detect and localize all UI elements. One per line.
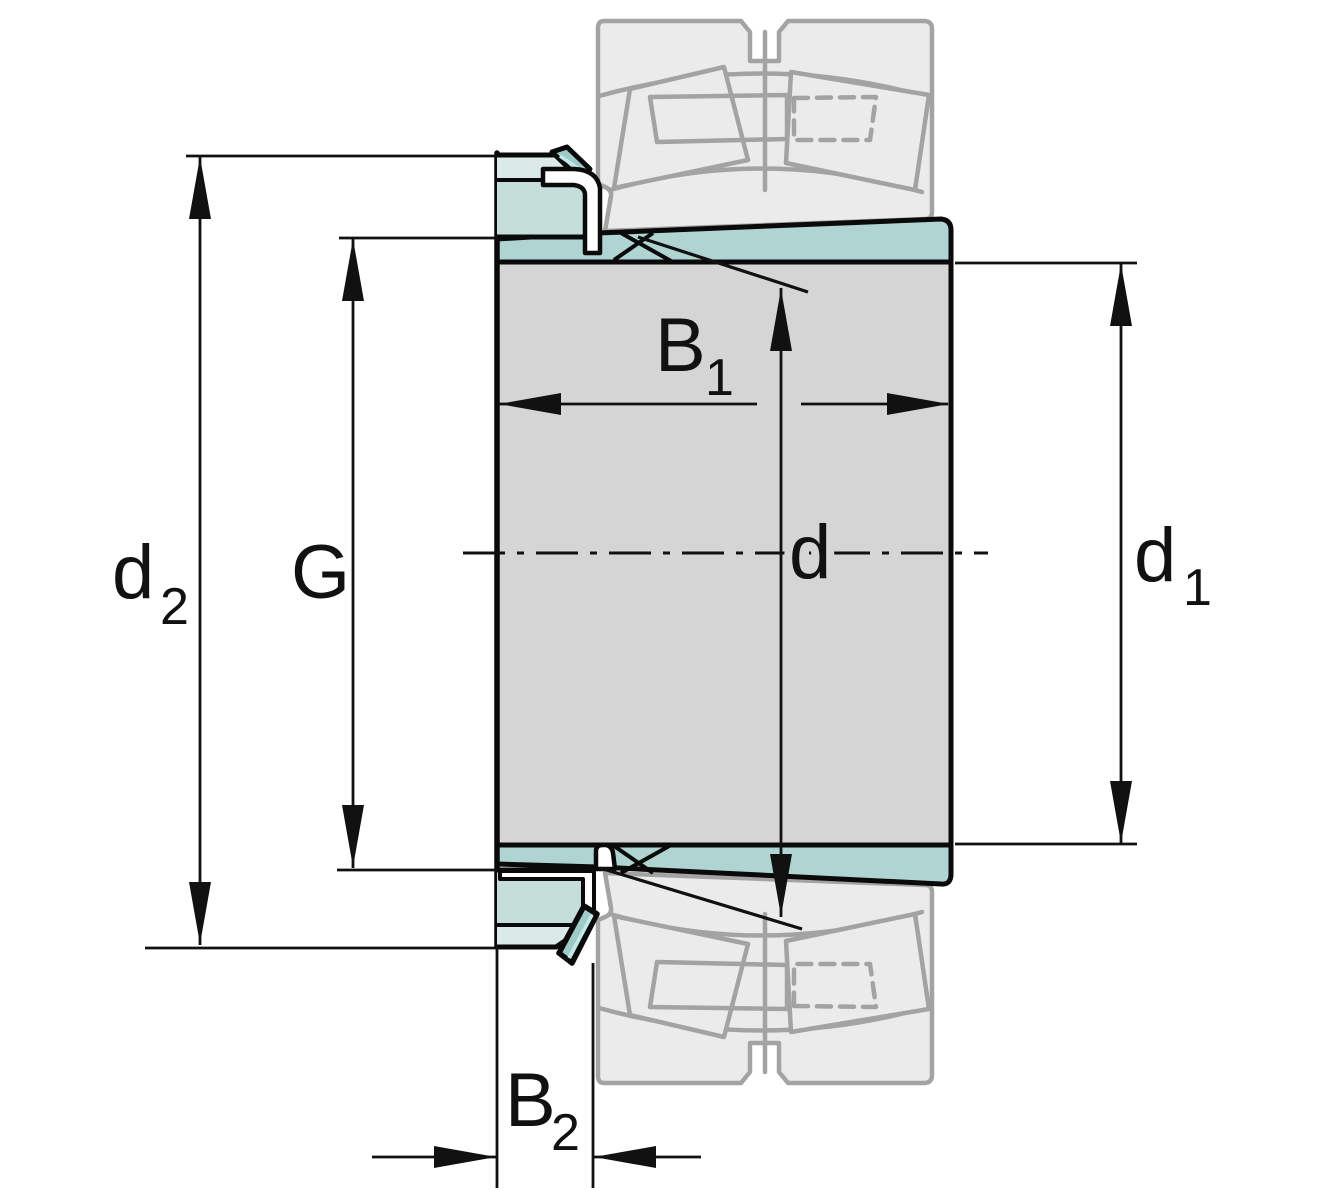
bearing-bottom-half	[598, 873, 932, 1083]
label-d2: d	[112, 530, 154, 615]
washer-hook-tab-bottom	[596, 845, 615, 869]
adapter-sleeve	[497, 153, 951, 947]
technical-drawing: d 2 G B 1 d d 1 B 2	[0, 0, 1330, 1200]
label-b2-sub: 2	[551, 1104, 580, 1162]
label-b1: B	[655, 303, 706, 388]
label-b2: B	[505, 1058, 556, 1143]
label-d: d	[789, 510, 831, 595]
nut-body	[497, 181, 587, 237]
label-d1: d	[1134, 513, 1176, 598]
label-b1-sub: 1	[705, 349, 734, 407]
technical-drawing-svg: d 2 G B 1 d d 1 B 2	[0, 0, 1330, 1200]
label-d2-sub: 2	[160, 578, 189, 636]
label-d1-sub: 1	[1183, 559, 1212, 617]
label-g: G	[291, 530, 350, 615]
bearing-top-half	[598, 21, 932, 231]
lock-nut-top	[497, 147, 600, 253]
